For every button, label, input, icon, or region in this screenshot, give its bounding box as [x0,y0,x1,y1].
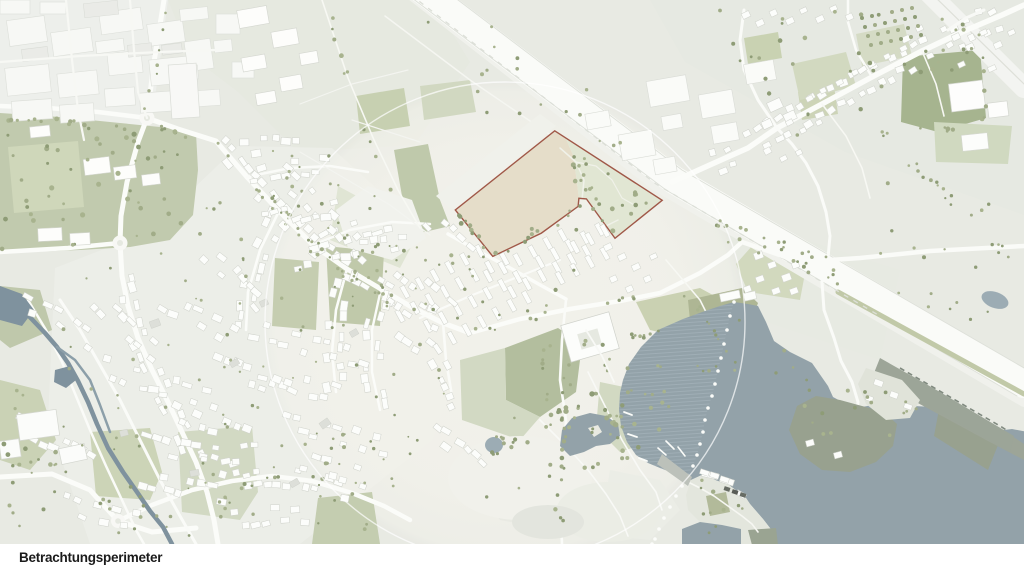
svg-text:Betrachtungsperimeter: Betrachtungsperimeter [19,550,163,565]
